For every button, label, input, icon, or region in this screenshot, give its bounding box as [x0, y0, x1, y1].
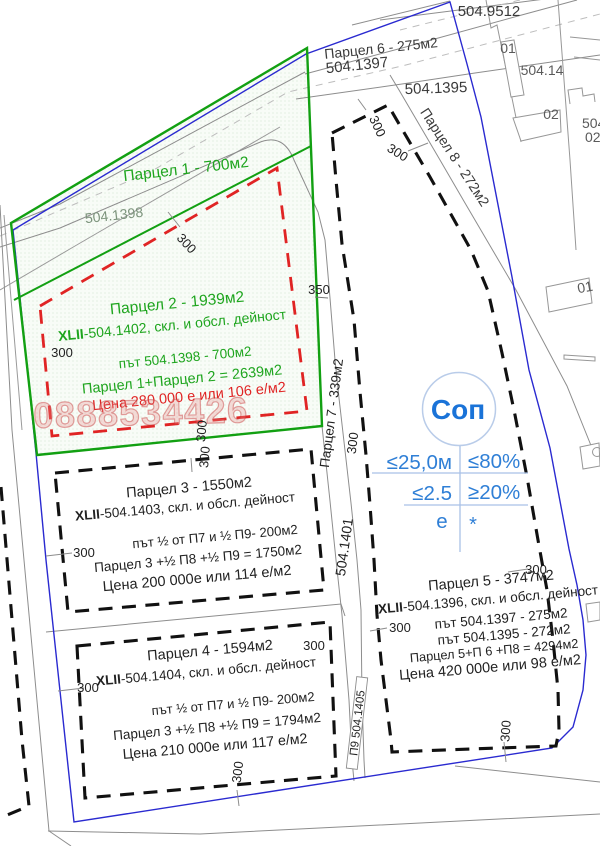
svg-text:е: е	[436, 510, 447, 533]
svg-text:504.1395: 504.1395	[404, 79, 467, 98]
svg-text:300: 300	[73, 545, 95, 560]
svg-text:300: 300	[385, 140, 411, 164]
svg-text:300: 300	[497, 720, 513, 743]
svg-text:300: 300	[525, 562, 547, 577]
svg-text:350: 350	[308, 282, 330, 297]
svg-text:300: 300	[389, 620, 411, 635]
svg-text:*: *	[469, 514, 477, 536]
svg-text:≤2.5: ≤2.5	[412, 482, 452, 505]
svg-text:0888534426: 0888534426	[33, 389, 249, 436]
svg-text:02: 02	[585, 129, 600, 145]
svg-text:≥20%: ≥20%	[468, 481, 520, 504]
svg-text:300: 300	[229, 760, 247, 783]
svg-text:504.1401: 504.1401	[332, 517, 356, 577]
svg-text:300: 300	[303, 638, 325, 653]
svg-text:300: 300	[77, 680, 99, 695]
svg-text:≤25,0м: ≤25,0м	[387, 451, 452, 474]
svg-text:300: 300	[193, 420, 210, 443]
svg-text:П9 504.1405: П9 504.1405	[348, 690, 367, 757]
svg-text:504.9512: 504.9512	[458, 3, 521, 20]
svg-text:XLII-504.1404, скл. и обсл. де: XLII-504.1404, скл. и обсл. дейност	[96, 654, 317, 688]
svg-text:300: 300	[344, 431, 362, 454]
svg-text:02: 02	[543, 106, 559, 122]
svg-text:300: 300	[366, 113, 389, 139]
svg-text:Соп: Соп	[431, 394, 485, 425]
svg-text:≤80%: ≤80%	[468, 450, 520, 473]
svg-text:01: 01	[500, 40, 516, 56]
svg-text:300: 300	[51, 345, 73, 360]
svg-text:300: 300	[196, 446, 213, 469]
svg-text:504.14: 504.14	[521, 62, 564, 78]
svg-text:01: 01	[576, 278, 594, 296]
